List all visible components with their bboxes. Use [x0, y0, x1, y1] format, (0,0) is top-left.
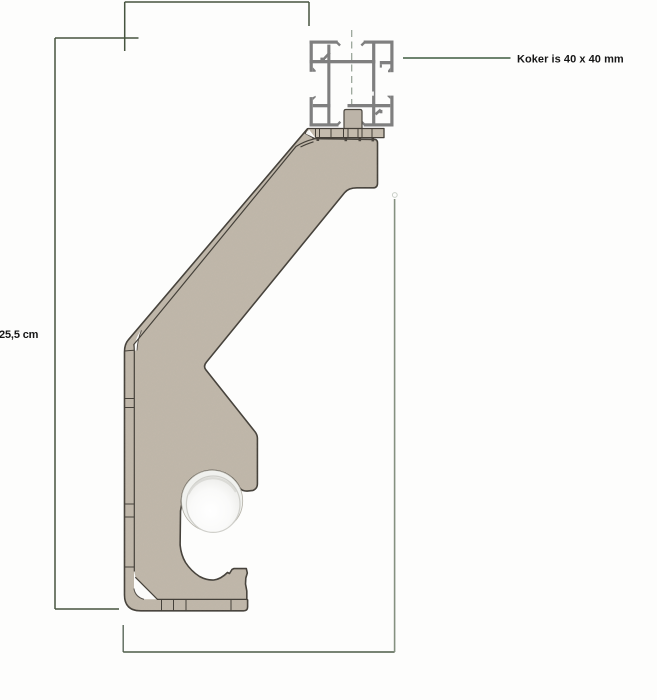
svg-text:25,5 cm: 25,5 cm: [0, 329, 39, 341]
svg-text:Koker is 40 x 40 mm: Koker is 40 x 40 mm: [517, 54, 624, 66]
